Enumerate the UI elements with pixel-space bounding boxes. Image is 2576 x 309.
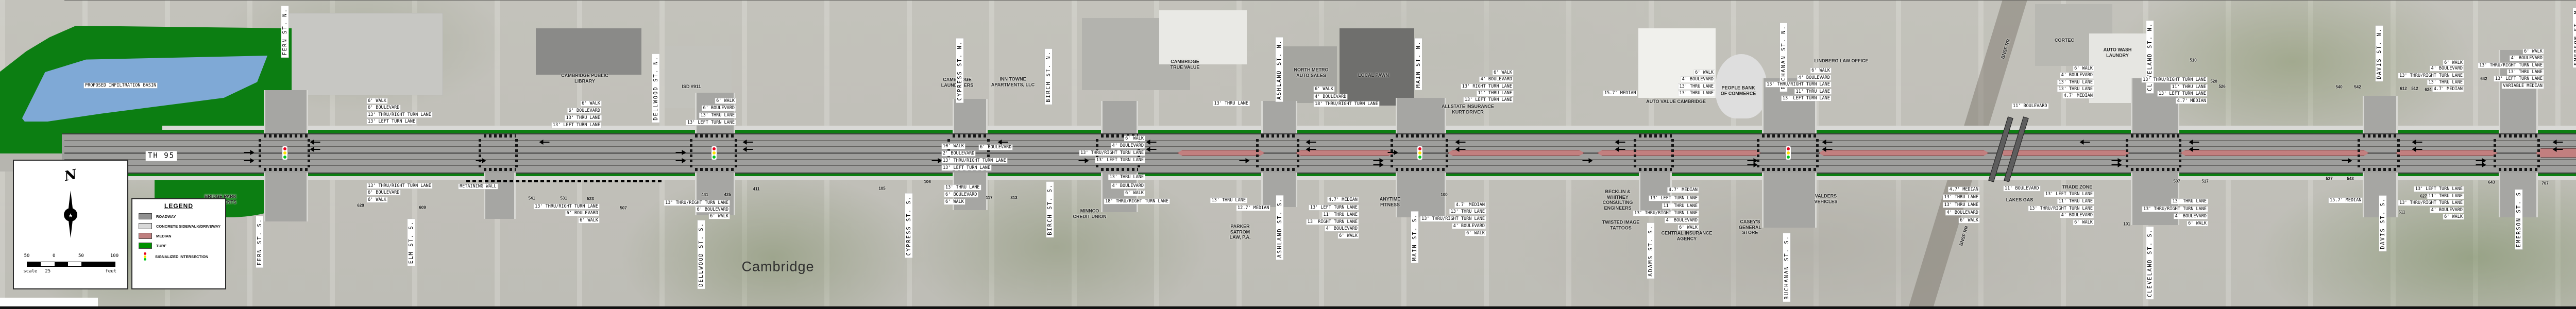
street-name-label: EMERSON ST. S xyxy=(2515,190,2522,249)
dimension-callout: 6' BOULEVARD xyxy=(566,211,599,216)
dimension-callout: 13' THRU LANE xyxy=(1449,209,1486,214)
dimension-callout: 4' BOULEVARD xyxy=(1452,224,1486,229)
house-number: 542 xyxy=(2354,85,2361,90)
street-name-label: FERN ST. S. xyxy=(256,216,263,268)
house-number: 105 xyxy=(878,186,885,191)
house-number: 526 xyxy=(2218,84,2225,89)
dimension-callout: 13' THRU LANE xyxy=(565,115,601,121)
dimension-callout: 13' THRU LANE xyxy=(1678,91,1715,96)
dimension-callout: 6' WALK xyxy=(2073,66,2094,71)
dimension-callout: 11' THRU LANE xyxy=(1322,212,1359,217)
legend-item-label: TURF xyxy=(156,244,166,248)
city-label: Cambridge xyxy=(741,259,814,275)
dimension-callout: 10' WALK xyxy=(942,144,965,149)
dimension-callout: 11' BOULEVARD xyxy=(2012,104,2048,109)
legend-item: SIGNALIZED INTERSECTION xyxy=(139,252,225,261)
dimension-callout: 6' WALK xyxy=(1314,87,1334,92)
dimension-callout: 11' THRU LANE xyxy=(1794,89,1831,94)
legend-item-label: CONCRETE SIDEWALK/DRIVEWAY xyxy=(156,224,221,229)
legend-item: CONCRETE SIDEWALK/DRIVEWAY xyxy=(139,223,225,229)
dimension-callout: PROPOSED INFILTRATION BASIN xyxy=(84,83,157,88)
dimension-callout: 11' THRU LANE xyxy=(1662,203,1699,209)
dimension-callout: 6' WALK xyxy=(944,199,965,204)
dimension-callout: 6' WALK xyxy=(579,218,599,223)
dimension-callout: 6' WALK xyxy=(1678,225,1699,230)
legend-item-label: SIGNALIZED INTERSECTION xyxy=(155,254,208,259)
legend: LEGEND ROADWAY CONCRETE SIDEWALK/DRIVEWA… xyxy=(131,198,226,289)
dimension-callout: 4.7' MEDIAN xyxy=(1668,187,1699,193)
building-label: CENTRAL INSURANCE AGENCY xyxy=(1662,231,1713,242)
north-letter: N xyxy=(63,167,78,184)
building-label: PEOPLE BANK OF COMMERCE xyxy=(1721,85,1756,96)
street-name-label: MAIN ST. S. xyxy=(1411,212,1418,263)
house-number: 106 xyxy=(924,180,930,184)
dimension-callout: RETAINING WALL xyxy=(459,184,498,189)
building-label: BECKLIN & WHITNEY CONSULTING ENGINEERS xyxy=(1603,189,1633,211)
dimension-callout: 6' WALK xyxy=(715,98,736,104)
dimension-callout: 13' THRU/RIGHT TURN LANE xyxy=(664,200,730,205)
building-label: NORTH METRO AUTO SALES xyxy=(1294,67,1329,78)
building-label: INN TOWNE APARTMENTS, LLC xyxy=(991,77,1035,88)
dimension-callout: 13' LEFT TURN LANE xyxy=(686,120,736,125)
dimension-callout: 13' LEFT TURN LANE xyxy=(942,165,991,170)
dimension-callout: 13' THRU/RIGHT TURN LANE xyxy=(2478,63,2544,68)
dimension-callout: 13' THRU/RIGHT TURN LANE xyxy=(367,183,432,188)
dimension-callout: 11' BOULEVARD xyxy=(2004,186,2040,191)
dimension-callout: 13' THRU/RIGHT TURN LANE xyxy=(2398,73,2464,78)
street-name-label: BIRCH ST. N. xyxy=(1045,49,1052,105)
dimension-callout: 13' THRU/RIGHT TURN LANE xyxy=(367,112,432,117)
dimension-callout: 15.7' MEDIAN xyxy=(2329,198,2362,203)
dimension-callout: 13' THRU LANE xyxy=(1943,195,1979,200)
dimension-callout: 13' THRU LANE xyxy=(699,113,736,118)
street-name-label: MAIN ST. N. xyxy=(1415,39,1422,90)
dimension-callout: 13' LEFT TURN LANE xyxy=(2158,91,2207,96)
dimension-callout: 6' WALK xyxy=(1810,68,1831,73)
building-label: TRADE ZONE xyxy=(2062,184,2093,190)
dimension-callout: 6' WALK xyxy=(2523,49,2544,54)
dimension-callout: 13' THRU LANE xyxy=(2427,80,2464,85)
legend-title: LEGEND xyxy=(132,202,225,210)
building-label: CAMBRIDGE PUBLIC LIBRARY xyxy=(561,73,608,84)
dimension-callout: 13' THRU LANE xyxy=(2171,199,2208,204)
dimension-callout: 6' WALK xyxy=(1694,70,1715,75)
dimension-callout: 15.7' MEDIAN xyxy=(1603,91,1637,96)
dimension-callout: TH 95 xyxy=(146,151,177,161)
dimension-callout: 6' WALK xyxy=(1124,136,1145,141)
street-name-label: DELLWOOD ST. N. xyxy=(652,54,659,123)
corridor-plan-canvas: 6' WALK6' BOULEVARD13' THRU/RIGHT TURN L… xyxy=(0,0,2576,309)
dimension-callout: 4' BOULEVARD xyxy=(1314,94,1347,99)
dimension-callout: 4' BOULEVARD xyxy=(2060,73,2094,78)
building-label: LINDBERG LAW OFFICE xyxy=(1815,58,1869,64)
dimension-callout: 18' THRU/RIGHT TURN LANE xyxy=(1104,199,1170,204)
dimension-callout: 4' BOULEVARD xyxy=(1111,183,1145,188)
dimension-callout: 4.7' MEDIAN xyxy=(1948,187,1979,192)
dimension-callout: 13' THRU/RIGHT TURN LANE xyxy=(2398,200,2464,205)
street-name-label: ASHLAND ST. N. xyxy=(1276,38,1283,102)
building-label: VALDERS VEHICLES xyxy=(1814,194,1837,204)
dimension-callout: 13' LEFT TURN LANE xyxy=(1095,158,1145,163)
house-number: 627 xyxy=(2420,194,2427,199)
house-number: 707 xyxy=(2541,181,2548,186)
dimension-callout: 6' WALK xyxy=(2443,214,2464,219)
dimension-callout: 13' THRU/RIGHT TURN LANE xyxy=(1079,150,1145,156)
house-number: 609 xyxy=(419,205,426,210)
legend-item: ROADWAY xyxy=(139,213,225,219)
dimension-callout: 4.7' MEDIAN xyxy=(1328,197,1359,202)
dimension-callout: 4' BOULEVARD xyxy=(1325,226,1359,231)
dimension-callout: 6' WALK xyxy=(367,197,387,202)
dimension-callout: 4' BOULEVARD xyxy=(2060,213,2094,218)
dimension-callout: 6' BOULEVARD xyxy=(944,192,978,197)
house-number: 100 xyxy=(1440,193,1447,197)
dimension-callout: 13' THRU LANE xyxy=(1213,101,1249,106)
dimension-callout: 13' THRU/RIGHT TURN LANE xyxy=(2142,77,2207,82)
dimension-callout: 13' LEFT TURN LANE xyxy=(1782,96,1831,101)
dimension-callout: 6' BOULEVARD xyxy=(979,145,1012,150)
dimension-callout: 4' BOULEVARD xyxy=(2430,208,2464,213)
building-label: CORTEC xyxy=(2055,38,2074,43)
dimension-callout: 6' WALK xyxy=(1493,70,1513,75)
building-label: ALLSTATE INSURANCE KURT DRIVER xyxy=(1442,104,1494,115)
dimension-callout: 4' BOULEVARD xyxy=(2430,66,2464,71)
building-label: CASEY'S GENERAL STORE xyxy=(1739,219,1761,235)
house-number: 527 xyxy=(2326,177,2332,181)
house-number: 624 xyxy=(2425,88,2431,92)
dimension-callout: 4' BOULEVARD xyxy=(2174,214,2208,219)
legend-item-label: ROADWAY xyxy=(156,214,176,219)
house-number: 101 xyxy=(2123,222,2130,227)
house-number: 520 xyxy=(2210,79,2217,84)
dimension-callout: 4.7' MEDIAN xyxy=(2433,87,2464,92)
house-number: 510 xyxy=(2190,58,2196,63)
dimension-callout: 11' THRU LANE xyxy=(1477,91,1513,96)
street-name-label: CYPRESS ST. S. xyxy=(905,194,912,258)
street-name-label: EMERSON ST. N xyxy=(2573,8,2576,67)
dimension-callout: 13' THRU LANE xyxy=(944,185,981,190)
dimension-callout: 13' LEFT TURN LANE xyxy=(2044,192,2094,197)
dimension-callout: 6' WALK xyxy=(2187,221,2208,226)
building-label: AUTO WASH LAUNDRY xyxy=(2104,47,2132,58)
legend-swatch xyxy=(139,243,152,249)
dimension-callout: 6' WALK xyxy=(2073,220,2094,225)
street-name-label: ASHLAND ST. S. xyxy=(1276,196,1283,260)
dimension-callout: 13' THRU LANE xyxy=(1108,175,1145,180)
legend-swatch xyxy=(139,233,152,239)
house-number: 425 xyxy=(724,193,731,197)
dimension-callout: 2' BOULEVARD xyxy=(942,151,975,156)
dimension-callout: 13' THRU/RIGHT TURN LANE xyxy=(942,158,1007,163)
house-number: 507 xyxy=(620,206,626,211)
dimension-callout: 6' WALK xyxy=(367,98,387,104)
house-number: 629 xyxy=(357,203,364,208)
dimension-callout: 6' BOULEVARD xyxy=(367,190,400,195)
dimension-callout: 13' LEFT TURN LANE xyxy=(367,119,416,124)
house-number: 517 xyxy=(2201,179,2208,184)
dimension-callout: 13' THRU/RIGHT TURN LANE xyxy=(2028,206,2094,211)
legend-item-label: MEDIAN xyxy=(156,234,172,238)
legend-item: MEDIAN xyxy=(139,233,225,239)
dimension-callout: 13' THRU/RIGHT TURN LANE xyxy=(2142,207,2208,212)
street-name-label: CYPRESS ST. N. xyxy=(956,39,963,103)
dimension-callout: 12.7' MEDIAN xyxy=(1236,205,1270,211)
dimension-callout: 6' BOULEVARD xyxy=(568,108,601,113)
dimension-callout: 13' LEFT TURN LANE xyxy=(552,123,601,128)
dimension-callout: 11' THRU LANE xyxy=(2171,84,2207,90)
dimension-callout: 4.7' MEDIAN xyxy=(2063,93,2094,98)
dimension-callout: 6' BOULEVARD xyxy=(696,207,730,212)
dimension-callout: 4.7' MEDIAN xyxy=(2176,98,2207,104)
street-name-label: DELLWOOD ST. S. xyxy=(698,220,705,289)
house-number: 543 xyxy=(2347,177,2353,181)
street-name-label: BUCHANAN ST. N. xyxy=(1780,23,1787,92)
dimension-callout: 4' BOULEVARD xyxy=(2510,56,2544,61)
dimension-callout: 6' WALK xyxy=(1959,218,1979,223)
building-label: ANYTIME FITNESS xyxy=(1380,197,1401,208)
street-name-label: DAVIS ST. N. xyxy=(2376,26,2383,81)
street-name-label: DAVIS ST. S. xyxy=(2379,196,2386,251)
dimension-callout: 13' THRU/RIGHT TURN LANE xyxy=(534,204,599,209)
house-number: 523 xyxy=(587,197,594,201)
building-label: MINNCO CREDIT UNION xyxy=(1073,209,1107,219)
dimension-callout: 13' THRU/RIGHT TURN LANE xyxy=(1420,216,1486,221)
building-label: ISD #911 xyxy=(682,84,701,90)
house-number: 611 xyxy=(2399,210,2405,215)
dimension-callout: 13' LEFT TURN LANE xyxy=(1649,196,1699,201)
dimension-callout: 6' BOULEVARD xyxy=(702,106,736,111)
dimension-callout: 6' WALK xyxy=(1124,191,1145,196)
dimension-callout: 13' LEFT TURN LANE xyxy=(2494,76,2544,81)
legend-item: TURF xyxy=(139,243,225,249)
dimension-callout: 6' WALK xyxy=(2443,60,2464,65)
dimension-callout: 13' THRU LANE xyxy=(2507,70,2544,75)
sheet-border xyxy=(0,306,2576,309)
dimension-callout: 13' LEFT TURN LANE xyxy=(2414,186,2464,192)
street-name-label: BUCHANAN ST. S. xyxy=(1783,233,1790,302)
dimension-callout: 13' THRU LANE xyxy=(1210,198,1247,203)
dimension-callout: 4' BOULEVARD xyxy=(1665,218,1699,223)
dimension-callout: 4' BOULEVARD xyxy=(1798,75,1831,80)
building-label: LAKES GAS xyxy=(2006,197,2033,203)
legend-swatch xyxy=(139,223,152,229)
north-arrow-scale-box: N ★ 50 0 50 100 scale 25 feet xyxy=(13,160,128,289)
legend-swatch xyxy=(139,252,151,261)
dimension-callout: VARIABLE MEDIAN xyxy=(2502,83,2544,89)
compass-star-icon: ★ xyxy=(64,208,77,221)
dimension-callout: 4' BOULEVARD xyxy=(1681,77,1715,82)
house-number: 642 xyxy=(2480,77,2487,81)
building-label: PARKER SATROM LAW, P.A. xyxy=(1230,224,1251,240)
dimension-callout: 13' THRU LANE xyxy=(2057,80,2094,85)
dimension-callout: 6' WALK xyxy=(1465,231,1486,236)
dimension-callout: 11' THRU LANE xyxy=(2057,199,2094,204)
dimension-callout: 13' THRU LANE xyxy=(2057,87,2094,92)
house-number: 541 xyxy=(528,196,535,201)
street-name-label: BIRCH ST. S. xyxy=(1046,182,1054,237)
house-number: 441 xyxy=(701,193,708,197)
house-number: 540 xyxy=(2335,85,2342,90)
street-name-label: FERN ST. N. xyxy=(281,6,289,58)
building-label: AUTO VALUE CAMBRIDGE xyxy=(1646,99,1706,105)
dimension-callout: 4' BOULEVARD xyxy=(1946,210,1979,215)
dimension-callout: 13' THRU LANE xyxy=(1678,84,1715,89)
scale-bar xyxy=(27,262,115,267)
building-label: LOCAL PAWN xyxy=(1358,73,1389,78)
dimension-callout: 11' THRU LANE xyxy=(2427,194,2464,199)
house-number: 643 xyxy=(2488,180,2495,185)
building-label: TWISTED IMAGE TATTOOS xyxy=(1602,220,1640,231)
dimension-callout: 6' WALK xyxy=(581,101,601,106)
house-number: 313 xyxy=(1010,196,1017,200)
house-number: 531 xyxy=(560,196,567,201)
house-number: 411 xyxy=(753,187,760,192)
dimension-callout: 4.7' MEDIAN xyxy=(1455,202,1486,208)
dimension-callout: 4' BOULEVARD xyxy=(1480,77,1513,82)
dimension-callout: 13' LEFT TURN LANE xyxy=(1309,205,1359,210)
dimension-callout: 13' RIGHT TURN LANE xyxy=(1461,84,1513,89)
dimension-callout: 6' WALK xyxy=(1338,233,1359,238)
legend-swatch xyxy=(139,213,152,219)
dimension-callout: 13' LEFT TURN LANE xyxy=(1464,97,1513,102)
house-number: 512 xyxy=(2411,87,2418,91)
dimension-callout: 13' THRU/RIGHT TURN LANE xyxy=(1766,82,1831,87)
house-number: 507 xyxy=(2173,179,2180,184)
building-label: CAMBRIDGE TRUE VALUE xyxy=(1171,59,1200,70)
dimension-callout: 6' BOULEVARD xyxy=(367,105,400,110)
street-name-label: ADAMS ST. S. xyxy=(1647,223,1654,279)
house-number-layer: 6296095415315235074414254111051061173131… xyxy=(0,0,2576,309)
street-name-label: ELM ST. S. xyxy=(408,219,415,266)
dimension-callout: 13' THRU/RIGHT TURN LANE xyxy=(1633,211,1699,216)
dimension-callout: 4' BOULEVARD xyxy=(1111,143,1145,148)
dimension-callout: 13' THRU LANE xyxy=(1943,202,1979,208)
dimension-callout: 18' THRU/RIGHT TURN LANE xyxy=(1314,101,1379,107)
street-name-label: CLEVELAND ST. S. xyxy=(2146,227,2154,299)
house-number: 117 xyxy=(986,196,993,200)
dimension-callout: 6' WALK xyxy=(709,214,730,219)
house-number: 612 xyxy=(2400,87,2406,91)
dimension-callout: 13' RIGHT TURN LANE xyxy=(1307,219,1359,225)
